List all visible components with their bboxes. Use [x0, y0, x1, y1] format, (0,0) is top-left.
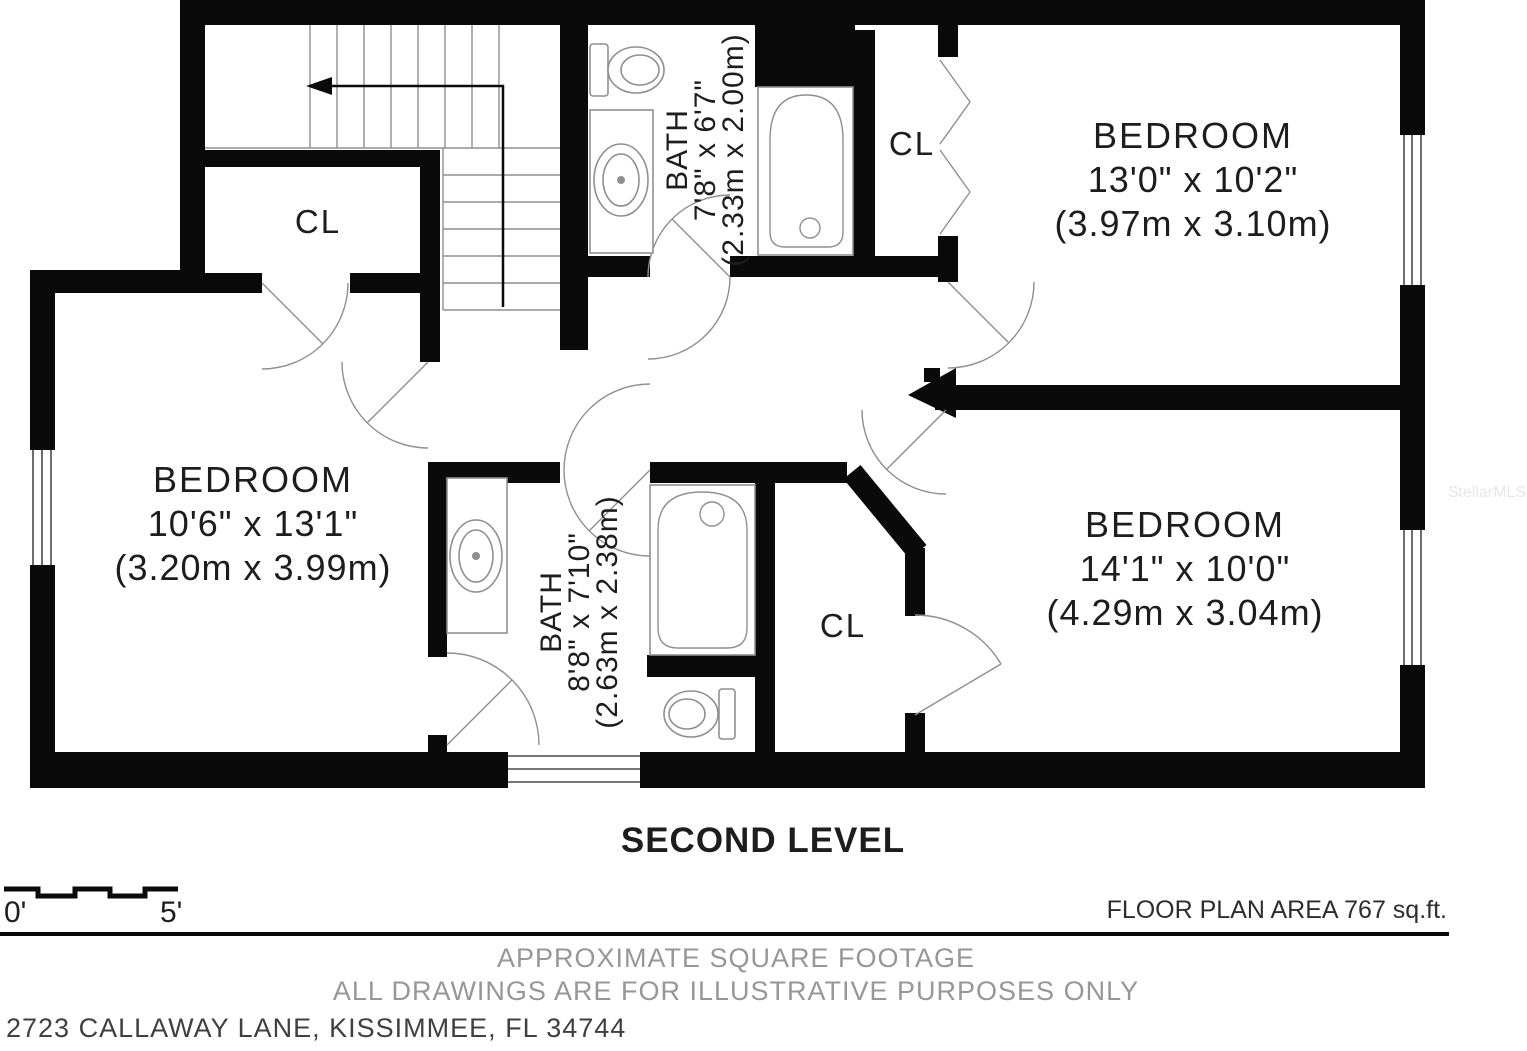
- room-label-bedroom-bottom-right: BEDROOM 14'1" x 10'0" (4.29m x 3.04m): [1046, 504, 1323, 633]
- property-address: 2723 CALLAWAY LANE, KISSIMMEE, FL 34744: [6, 1013, 626, 1043]
- room-name: BEDROOM: [1085, 504, 1285, 545]
- scale-bar: 0' 5': [4, 889, 182, 929]
- door-bedroom-top-right: [948, 282, 1034, 368]
- room-label-bath-bottom: BATH 8'8" x 7'10" (2.63m x 2.38m): [535, 495, 624, 728]
- window-right-bottom: [1404, 530, 1421, 665]
- room-name: BEDROOM: [153, 459, 353, 500]
- bathtub-bottom-icon: [650, 485, 755, 655]
- closet-label-top-right: CL: [889, 125, 935, 162]
- closet-bifold-doors: [940, 60, 970, 234]
- footnote-line2: ALL DRAWINGS ARE FOR ILLUSTRATIVE PURPOS…: [333, 976, 1139, 1006]
- level-title: SECOND LEVEL: [621, 821, 905, 860]
- room-dim-imperial: 14'1" x 10'0": [1080, 548, 1290, 589]
- room-name: BEDROOM: [1093, 115, 1293, 156]
- room-dim-metric: (4.29m x 3.04m): [1046, 592, 1323, 633]
- closet-label-top-left: CL: [295, 203, 341, 240]
- scale-bar-line: [4, 889, 178, 896]
- bathtub-top-icon: [758, 87, 853, 255]
- door-bedroom-bottom-right: [862, 410, 946, 494]
- closet-label-bottom: CL: [820, 607, 866, 644]
- window-bottom: [508, 756, 640, 782]
- door-bedroom-bath-connecting: [447, 653, 539, 745]
- scale-start-label: 0': [4, 896, 26, 929]
- floor-plan-area-label: FLOOR PLAN AREA 767 sq.ft.: [1107, 896, 1447, 924]
- floor-plan-page: BEDROOM 13'0" x 10'2" (3.97m x 3.10m) BE…: [0, 0, 1527, 1046]
- room-label-bedroom-top-right: BEDROOM 13'0" x 10'2" (3.97m x 3.10m): [1054, 115, 1331, 244]
- door-closet-bottom: [915, 615, 1001, 715]
- staircase: [205, 25, 560, 310]
- room-label-bedroom-left: BEDROOM 10'6" x 13'1" (3.20m x 3.99m): [114, 459, 391, 588]
- door-closet-top-left: [262, 283, 348, 369]
- room-dim-imperial: 13'0" x 10'2": [1088, 159, 1298, 200]
- vanity-sink-bottom-icon: [447, 478, 507, 633]
- room-dim-imperial: 10'6" x 13'1": [148, 503, 358, 544]
- footnote-line1: APPROXIMATE SQUARE FOOTAGE: [497, 943, 975, 973]
- scale-end-label: 5': [160, 896, 182, 929]
- toilet-bottom-icon: [664, 689, 735, 739]
- window-right-top: [1404, 135, 1421, 285]
- toilet-top-icon: [590, 44, 664, 96]
- room-dim-metric: (2.33m x 2.00m): [717, 33, 750, 266]
- room-dim-metric: (2.63m x 2.38m): [591, 495, 624, 728]
- room-dim-metric: (3.20m x 3.99m): [114, 547, 391, 588]
- vanity-sink-top-icon: [590, 110, 653, 253]
- floor-plan-drawing: BEDROOM 13'0" x 10'2" (3.97m x 3.10m) BE…: [0, 0, 1527, 1046]
- door-bedroom-left: [342, 362, 428, 448]
- watermark: StellarMLS: [1448, 484, 1526, 501]
- room-label-bath-top: BATH 7'8" x 6'7" (2.33m x 2.00m): [661, 33, 750, 266]
- room-dim-metric: (3.97m x 3.10m): [1054, 203, 1331, 244]
- window-left: [33, 450, 51, 565]
